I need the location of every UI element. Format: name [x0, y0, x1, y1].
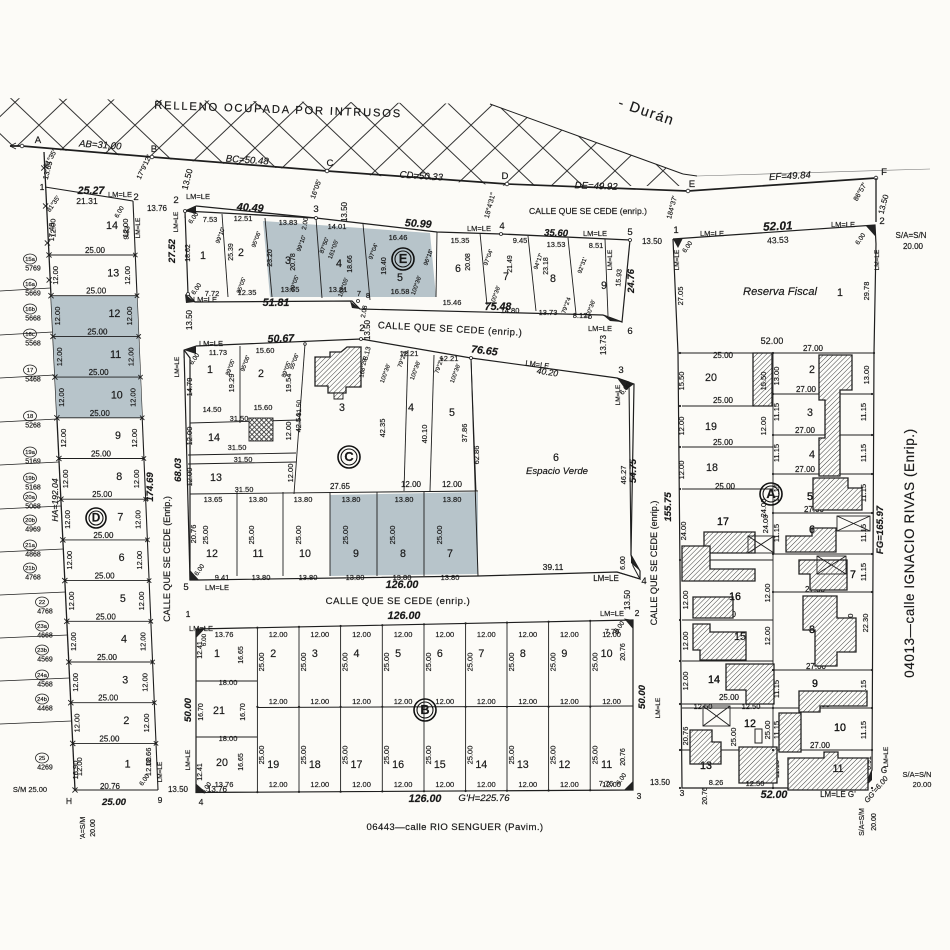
- svg-text:6: 6: [809, 524, 815, 536]
- svg-text:27.00: 27.00: [803, 344, 824, 353]
- svg-text:5: 5: [449, 407, 455, 419]
- svg-text:12.00: 12.00: [284, 422, 293, 441]
- svg-text:20: 20: [705, 372, 717, 384]
- svg-text:16: 16: [729, 591, 741, 603]
- svg-text:4269: 4269: [37, 765, 53, 772]
- svg-text:14.50: 14.50: [203, 405, 222, 414]
- svg-text:12.00: 12.00: [518, 780, 537, 789]
- svg-text:12.00: 12.00: [134, 510, 143, 529]
- svg-text:9: 9: [353, 548, 359, 560]
- svg-text:25.00: 25.00: [713, 396, 734, 405]
- svg-text:6: 6: [119, 552, 125, 564]
- svg-text:21: 21: [213, 705, 225, 717]
- svg-text:14: 14: [106, 220, 118, 232]
- svg-text:16.70: 16.70: [198, 703, 205, 721]
- svg-text:25.39: 25.39: [228, 243, 235, 261]
- svg-text:S/A=S/N: S/A=S/N: [903, 770, 932, 779]
- svg-text:12.00: 12.00: [442, 480, 463, 489]
- svg-text:42.35: 42.35: [378, 419, 387, 438]
- svg-text:16: 16: [392, 759, 404, 771]
- svg-text:13.65: 13.65: [204, 495, 223, 504]
- svg-text:3: 3: [637, 791, 642, 801]
- svg-text:25.00: 25.00: [86, 287, 107, 296]
- svg-text:12: 12: [744, 718, 756, 730]
- svg-text:C: C: [344, 449, 353, 464]
- svg-text:12.00: 12.00: [65, 551, 74, 570]
- svg-text:18: 18: [706, 462, 718, 474]
- svg-text:12.00: 12.00: [435, 697, 454, 706]
- svg-text:8.26: 8.26: [709, 778, 724, 787]
- svg-text:14: 14: [708, 674, 720, 686]
- svg-text:10: 10: [111, 390, 123, 402]
- svg-text:20.78: 20.78: [290, 253, 297, 271]
- svg-text:25.00: 25.00: [548, 653, 557, 672]
- svg-text:13: 13: [517, 759, 529, 771]
- svg-text:25: 25: [39, 756, 46, 762]
- svg-text:4868: 4868: [25, 552, 41, 559]
- svg-text:25.00: 25.00: [719, 693, 740, 702]
- svg-text:LM=LE: LM=LE: [593, 574, 619, 583]
- svg-text:5: 5: [120, 593, 126, 605]
- svg-text:3: 3: [807, 407, 813, 419]
- svg-text:27.52: 27.52: [167, 238, 178, 264]
- svg-text:25.00: 25.00: [763, 721, 772, 740]
- svg-text:6: 6: [455, 263, 461, 275]
- svg-text:21.49: 21.49: [507, 255, 514, 273]
- svg-text:15.46: 15.46: [443, 298, 462, 307]
- svg-text:155.75: 155.75: [663, 492, 674, 522]
- svg-text:25.00: 25.00: [507, 653, 516, 672]
- svg-text:4: 4: [809, 449, 815, 461]
- svg-text:B: B: [151, 144, 157, 155]
- svg-text:5: 5: [183, 582, 188, 593]
- svg-text:LM=LE: LM=LE: [874, 250, 881, 270]
- svg-text:12.00: 12.00: [59, 429, 68, 448]
- svg-text:21a: 21a: [25, 543, 36, 549]
- svg-text:25.00: 25.00: [713, 351, 734, 360]
- svg-text:31.50: 31.50: [230, 414, 249, 423]
- svg-text:20.76: 20.76: [100, 782, 121, 791]
- svg-text:13.50: 13.50: [185, 309, 194, 330]
- svg-text:25.00: 25.00: [548, 746, 557, 765]
- svg-text:17: 17: [27, 368, 34, 374]
- svg-text:4468: 4468: [37, 706, 53, 713]
- svg-text:52.01: 52.01: [763, 218, 793, 234]
- svg-text:11: 11: [832, 763, 843, 775]
- svg-text:25.00: 25.00: [465, 746, 474, 765]
- svg-text:22: 22: [39, 600, 46, 606]
- svg-text:9.83: 9.83: [123, 226, 131, 240]
- svg-text:25.00: 25.00: [92, 490, 113, 499]
- svg-text:8: 8: [550, 273, 556, 285]
- svg-text:3: 3: [680, 788, 685, 798]
- svg-text:19a: 19a: [25, 450, 36, 456]
- svg-text:14: 14: [208, 432, 220, 444]
- svg-text:13.50: 13.50: [168, 785, 189, 794]
- svg-text:LM=LE: LM=LE: [205, 583, 229, 592]
- svg-text:12.00: 12.00: [560, 780, 579, 789]
- svg-text:21.31: 21.31: [76, 196, 98, 206]
- svg-text:13.80: 13.80: [252, 573, 271, 582]
- svg-text:20.00: 20.00: [903, 242, 924, 251]
- svg-text:12.00: 12.00: [435, 630, 454, 639]
- svg-text:13.80: 13.80: [346, 573, 365, 582]
- svg-text:9: 9: [601, 280, 607, 292]
- svg-text:15.60: 15.60: [256, 346, 275, 355]
- svg-text:13: 13: [210, 472, 222, 484]
- svg-text:16.58: 16.58: [391, 287, 410, 296]
- svg-text:13.80: 13.80: [443, 495, 462, 504]
- svg-text:13.76: 13.76: [215, 780, 234, 789]
- svg-text:9: 9: [561, 648, 567, 660]
- svg-text:2: 2: [809, 364, 815, 376]
- svg-text:25.00: 25.00: [97, 653, 118, 662]
- svg-text:12.00: 12.00: [560, 697, 579, 706]
- svg-text:25.00: 25.00: [93, 531, 114, 540]
- svg-text:16c: 16c: [25, 332, 35, 338]
- svg-text:12.00: 12.00: [518, 697, 537, 706]
- svg-text:11.15: 11.15: [772, 524, 781, 542]
- svg-text:25.00: 25.00: [382, 653, 391, 672]
- svg-text:19b: 19b: [25, 476, 36, 482]
- svg-text:8.51: 8.51: [589, 241, 604, 250]
- svg-text:4568: 4568: [37, 682, 53, 689]
- svg-text:52.00: 52.00: [761, 336, 784, 346]
- svg-text:43.53: 43.53: [767, 234, 789, 245]
- svg-text:13.53: 13.53: [547, 240, 566, 249]
- svg-text:4768: 4768: [25, 575, 41, 582]
- svg-text:23.20: 23.20: [267, 249, 274, 267]
- svg-text:LM=LE: LM=LE: [674, 250, 681, 270]
- svg-text:8: 8: [809, 624, 815, 636]
- svg-text:DE=49.92: DE=49.92: [574, 180, 618, 193]
- svg-text:LM=LE: LM=LE: [588, 324, 612, 333]
- svg-text:2: 2: [173, 195, 178, 206]
- svg-text:12.00: 12.00: [125, 307, 134, 326]
- svg-text:15: 15: [434, 759, 446, 771]
- svg-text:LM=LE: LM=LE: [135, 218, 142, 238]
- svg-text:13.80: 13.80: [299, 573, 318, 582]
- svg-text:14: 14: [475, 759, 487, 771]
- svg-text:12.00: 12.00: [123, 266, 132, 285]
- svg-text:LM=LE: LM=LE: [186, 192, 210, 201]
- svg-text:12.00: 12.00: [681, 672, 690, 691]
- svg-text:17: 17: [351, 759, 363, 771]
- svg-text:11: 11: [110, 349, 121, 361]
- svg-text:17: 17: [717, 516, 729, 528]
- svg-text:4: 4: [499, 221, 505, 232]
- svg-text:24.00: 24.00: [759, 499, 768, 518]
- svg-text:A: A: [35, 135, 42, 146]
- svg-text:13: 13: [700, 760, 712, 772]
- svg-text:20.08: 20.08: [465, 253, 472, 271]
- svg-text:9.45: 9.45: [513, 236, 528, 245]
- svg-text:14.01: 14.01: [328, 222, 347, 231]
- svg-text:40.49: 40.49: [235, 201, 264, 215]
- svg-text:5268: 5268: [25, 423, 41, 430]
- svg-text:20b: 20b: [25, 518, 36, 524]
- svg-text:12.66: 12.66: [144, 748, 153, 767]
- svg-text:LM=LE: LM=LE: [193, 295, 217, 304]
- svg-text:5: 5: [395, 648, 401, 660]
- svg-text:25.00: 25.00: [95, 572, 116, 581]
- svg-text:25.00: 25.00: [424, 746, 433, 765]
- svg-text:25.00: 25.00: [591, 653, 600, 672]
- svg-text:12.00: 12.00: [394, 780, 413, 789]
- svg-text:5068: 5068: [25, 504, 41, 511]
- svg-text:3: 3: [122, 674, 128, 686]
- svg-text:24b: 24b: [37, 697, 48, 703]
- svg-text:35.60: 35.60: [544, 228, 569, 240]
- svg-text:5168: 5168: [25, 485, 41, 492]
- svg-text:18: 18: [309, 759, 321, 771]
- svg-text:12.00: 12.00: [677, 417, 686, 436]
- svg-text:12.00: 12.00: [310, 780, 329, 789]
- svg-text:25.00: 25.00: [99, 734, 120, 743]
- svg-text:31.50: 31.50: [235, 485, 254, 494]
- svg-text:12.00: 12.00: [128, 388, 137, 407]
- svg-text:12.00: 12.00: [269, 780, 288, 789]
- svg-text:11.15: 11.15: [859, 563, 868, 581]
- svg-text:62.86: 62.86: [472, 446, 481, 465]
- svg-text:4668: 4668: [37, 633, 53, 640]
- svg-text:12.00: 12.00: [185, 427, 194, 446]
- svg-text:12.00: 12.00: [352, 780, 371, 789]
- svg-text:8: 8: [400, 548, 406, 560]
- svg-text:1: 1: [837, 287, 843, 299]
- svg-text:CALLE QUE SE CEDE (Enrip.): CALLE QUE SE CEDE (Enrip.): [162, 496, 172, 622]
- svg-text:25.00: 25.00: [424, 653, 433, 672]
- svg-text:HA=192.04: HA=192.04: [50, 478, 60, 521]
- svg-text:12.00: 12.00: [130, 429, 139, 448]
- svg-text:16.65: 16.65: [238, 646, 245, 664]
- svg-text:50.67: 50.67: [267, 333, 295, 346]
- svg-text:Espacio Verde: Espacio Verde: [526, 466, 588, 477]
- svg-text:10: 10: [601, 648, 613, 660]
- svg-text:20.76: 20.76: [620, 748, 627, 766]
- svg-text:39.11: 39.11: [543, 562, 564, 572]
- svg-text:20.76: 20.76: [681, 727, 690, 746]
- svg-text:24a: 24a: [37, 673, 48, 679]
- svg-text:20: 20: [216, 757, 228, 769]
- svg-text:12.00: 12.00: [73, 714, 82, 733]
- svg-text:LM=LE: LM=LE: [607, 250, 614, 270]
- svg-text:CALLE QUE SE CEDE (enrip.): CALLE QUE SE CEDE (enrip.): [326, 596, 471, 607]
- svg-text:25.00: 25.00: [382, 746, 391, 765]
- svg-text:12.00: 12.00: [286, 464, 295, 483]
- svg-text:12.00: 12.00: [137, 592, 146, 611]
- svg-text:25.00: 25.00: [507, 746, 516, 765]
- svg-text:12.00: 12.00: [759, 417, 768, 436]
- svg-text:12.00: 12.00: [53, 307, 62, 326]
- svg-text:20.76: 20.76: [620, 643, 627, 661]
- svg-text:8: 8: [520, 648, 526, 660]
- svg-text:25.00: 25.00: [299, 746, 308, 765]
- svg-text:5669: 5669: [25, 291, 41, 298]
- svg-text:11.15: 11.15: [859, 721, 868, 739]
- svg-text:6: 6: [437, 648, 443, 660]
- svg-text:12.00: 12.00: [142, 714, 151, 733]
- svg-text:12.00: 12.00: [67, 592, 76, 611]
- svg-text:11.15: 11.15: [859, 403, 868, 421]
- svg-text:12.00: 12.00: [352, 630, 371, 639]
- svg-text:7: 7: [447, 548, 453, 560]
- svg-text:Reserva Fiscal: Reserva Fiscal: [743, 286, 817, 298]
- svg-text:23a: 23a: [37, 624, 48, 630]
- svg-text:4768: 4768: [37, 609, 53, 616]
- svg-text:3: 3: [313, 204, 318, 215]
- svg-text:LM=LE: LM=LE: [700, 229, 724, 238]
- svg-text:25.00: 25.00: [247, 526, 256, 545]
- svg-text:23b: 23b: [37, 648, 48, 654]
- svg-text:E: E: [689, 179, 695, 190]
- svg-text:11.15: 11.15: [859, 444, 868, 462]
- svg-text:25.00: 25.00: [715, 482, 736, 491]
- svg-text:16.65: 16.65: [238, 753, 245, 771]
- svg-text:25.00: 25.00: [591, 746, 600, 765]
- svg-text:1: 1: [207, 364, 213, 376]
- svg-text:CALLE QUE SE CEDE (enrip.): CALLE QUE SE CEDE (enrip.): [649, 501, 659, 626]
- svg-text:13.50: 13.50: [650, 778, 671, 787]
- svg-text:50.99: 50.99: [404, 217, 432, 231]
- svg-text:12.00: 12.00: [681, 591, 690, 610]
- svg-text:20.00: 20.00: [871, 813, 878, 831]
- svg-text:D: D: [92, 511, 101, 525]
- svg-text:G: G: [881, 766, 887, 775]
- svg-text:12.00: 12.00: [401, 480, 422, 489]
- svg-text:25.00: 25.00: [435, 526, 444, 545]
- svg-text:27.00: 27.00: [810, 741, 831, 750]
- svg-text:2: 2: [133, 192, 138, 203]
- svg-text:12.00: 12.00: [269, 630, 288, 639]
- svg-text:12.00: 12.00: [602, 697, 621, 706]
- svg-text:11.15: 11.15: [772, 403, 781, 421]
- svg-text:12.00: 12.00: [477, 697, 496, 706]
- svg-text:31.50: 31.50: [296, 400, 303, 416]
- svg-text:15: 15: [734, 631, 746, 643]
- svg-text:LM=LE: LM=LE: [189, 624, 213, 633]
- svg-text:12.00: 12.00: [310, 697, 329, 706]
- svg-text:S/A=S/M: S/A=S/M: [859, 808, 866, 836]
- svg-text:13.76: 13.76: [215, 630, 234, 639]
- svg-text:LM=LE: LM=LE: [157, 762, 164, 782]
- svg-text:LM=LE: LM=LE: [600, 609, 624, 618]
- svg-text:11: 11: [252, 548, 263, 560]
- svg-text:25.00: 25.00: [96, 612, 117, 621]
- svg-text:25.00: 25.00: [201, 526, 210, 545]
- svg-text:LM=LE: LM=LE: [583, 229, 607, 238]
- svg-text:18.62: 18.62: [185, 244, 192, 262]
- svg-text:7.53: 7.53: [203, 215, 218, 224]
- svg-text:27.00: 27.00: [796, 385, 817, 394]
- svg-text:14.80: 14.80: [501, 306, 520, 315]
- svg-text:13.50: 13.50: [623, 589, 632, 610]
- svg-text:12.00: 12.00: [135, 551, 144, 570]
- svg-text:9: 9: [812, 678, 818, 690]
- svg-text:5169: 5169: [25, 459, 41, 466]
- svg-text:12.00: 12.00: [51, 266, 60, 285]
- svg-text:12.00: 12.00: [57, 388, 66, 407]
- svg-text:13.80: 13.80: [441, 573, 460, 582]
- svg-text:12.00: 12.00: [763, 584, 772, 603]
- svg-text:25.00: 25.00: [91, 450, 112, 459]
- svg-text:22.30: 22.30: [861, 614, 870, 633]
- svg-text:13: 13: [107, 267, 119, 279]
- svg-text:7: 7: [850, 569, 856, 581]
- svg-text:12.00: 12.00: [394, 630, 413, 639]
- svg-text:12.51: 12.51: [234, 214, 253, 223]
- svg-text:F: F: [881, 167, 887, 178]
- svg-text:50.00: 50.00: [183, 697, 194, 722]
- svg-text:20.00: 20.00: [913, 780, 932, 789]
- svg-text:13.80: 13.80: [249, 495, 268, 504]
- svg-text:12.00: 12.00: [677, 461, 686, 480]
- svg-text:12.00: 12.00: [477, 780, 496, 789]
- svg-text:6: 6: [627, 326, 632, 337]
- svg-text:15.60: 15.60: [254, 403, 273, 412]
- svg-text:18: 18: [27, 414, 34, 420]
- svg-text:6.00: 6.00: [201, 633, 208, 646]
- svg-text:EF=49.84: EF=49.84: [769, 170, 811, 183]
- svg-text:25.00: 25.00: [101, 797, 127, 808]
- svg-text:LM=LE: LM=LE: [655, 698, 662, 718]
- svg-text:12.00: 12.00: [763, 627, 772, 646]
- svg-text:4: 4: [336, 258, 342, 270]
- svg-text:13.83: 13.83: [279, 218, 298, 227]
- svg-text:1: 1: [40, 182, 45, 192]
- svg-text:10: 10: [299, 548, 311, 560]
- svg-text:27.05: 27.05: [676, 287, 685, 306]
- svg-text:12.00: 12.00: [435, 780, 454, 789]
- svg-text:126.00: 126.00: [388, 610, 421, 622]
- svg-text:15a: 15a: [25, 257, 36, 263]
- svg-text:12: 12: [108, 308, 120, 320]
- svg-text:12.00: 12.00: [127, 347, 136, 366]
- svg-text:16.70: 16.70: [240, 703, 247, 721]
- svg-text:20a: 20a: [25, 495, 36, 501]
- svg-text:12.00: 12.00: [132, 470, 141, 489]
- svg-text:LM=LE: LM=LE: [199, 339, 223, 348]
- svg-text:25.00: 25.00: [87, 327, 108, 336]
- svg-text:18.00: 18.00: [219, 734, 238, 743]
- svg-text:31.50: 31.50: [228, 443, 247, 452]
- svg-text:23.18: 23.18: [543, 257, 550, 275]
- svg-text:LM=LE G’: LM=LE G’: [820, 790, 856, 799]
- svg-text:12.00: 12.00: [55, 347, 64, 366]
- svg-text:15.50: 15.50: [759, 372, 768, 391]
- svg-text:5769: 5769: [25, 266, 41, 273]
- svg-text:25.00: 25.00: [713, 438, 734, 447]
- svg-text:C: C: [327, 158, 334, 169]
- svg-text:12.50: 12.50: [746, 779, 765, 788]
- svg-text:13.00: 13.00: [862, 366, 871, 385]
- svg-text:12.00: 12.00: [518, 630, 537, 639]
- svg-text:LM=LE: LM=LE: [174, 357, 181, 377]
- svg-text:8: 8: [116, 471, 122, 483]
- svg-text:126.00: 126.00: [386, 579, 419, 591]
- svg-text:18.66: 18.66: [347, 255, 354, 273]
- svg-text:20.76: 20.76: [189, 525, 198, 544]
- svg-text:9: 9: [115, 430, 121, 442]
- svg-text:7: 7: [357, 289, 361, 298]
- svg-text:52.00: 52.00: [761, 789, 788, 801]
- svg-text:12.00: 12.00: [310, 630, 329, 639]
- svg-text:'A=S/M: 'A=S/M: [80, 817, 87, 840]
- svg-text:4969: 4969: [25, 527, 41, 534]
- svg-text:25.00: 25.00: [341, 653, 350, 672]
- svg-text:LM=LE: LM=LE: [615, 385, 622, 405]
- svg-text:8: 8: [366, 291, 370, 300]
